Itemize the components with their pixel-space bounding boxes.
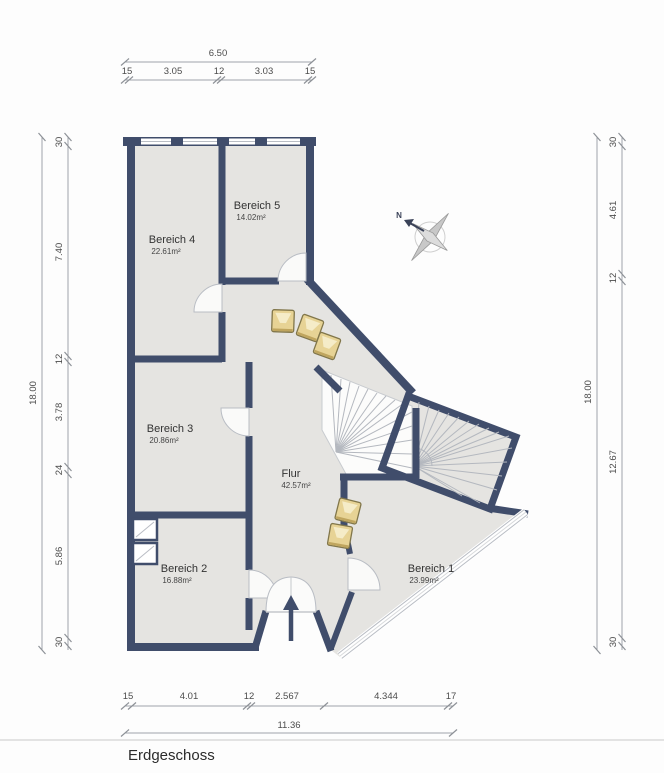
dim-right-seg1: 4.61 <box>608 201 619 220</box>
dim-top-seg3: 3.03 <box>255 66 274 77</box>
dim-bottom-seg3: 2.567 <box>275 691 299 702</box>
marker-box <box>327 523 352 548</box>
room-area-flur: 42.57m² <box>281 481 311 490</box>
dim-bottom-seg4: 4.344 <box>374 691 398 702</box>
room-area-bereich2: 16.88m² <box>162 576 192 585</box>
dimension-bottom: 15 4.01 12 2.567 4.344 17 11.36 <box>121 691 457 737</box>
dim-left-seg1: 7.40 <box>54 243 65 262</box>
room-area-bereich3: 20.86m² <box>149 436 179 445</box>
page-title: Erdgeschoss <box>128 747 215 764</box>
room-area-bereich4: 22.61m² <box>151 247 181 256</box>
title-block: Erdgeschoss <box>0 740 664 764</box>
dim-bottom-seg1: 4.01 <box>180 691 199 702</box>
dim-top-overall: 6.50 <box>209 48 228 59</box>
dim-top-seg2: 12 <box>214 66 225 77</box>
dim-left-overall: 18.00 <box>28 381 39 405</box>
floor-plan-page: N Bereich 5 14.02m² Bereich 4 22.61m² Be… <box>0 0 664 773</box>
dim-top-seg1: 3.05 <box>164 66 183 77</box>
room-label-bereich1: Bereich 1 <box>408 563 454 575</box>
marker-box <box>272 310 295 333</box>
dim-right-seg0: 30 <box>608 137 619 148</box>
dim-left-seg5: 5.86 <box>54 547 65 566</box>
room-label-bereich2: Bereich 2 <box>161 563 207 575</box>
dim-right-seg3: 12.67 <box>608 450 619 474</box>
compass-icon: N <box>394 200 466 274</box>
dim-bottom-seg2: 12 <box>244 691 255 702</box>
dim-left-seg3: 3.78 <box>54 403 65 422</box>
dimension-right: 18.00 30 4.61 12 12.67 30 <box>583 133 626 654</box>
dim-bottom-seg0: 15 <box>123 691 134 702</box>
room-area-bereich5: 14.02m² <box>236 213 266 222</box>
dimension-left: 18.00 30 7.40 12 3.78 24 5.86 30 <box>28 133 72 654</box>
dim-right-seg2: 12 <box>608 273 619 284</box>
dimension-top: 6.50 15 3.05 12 3.03 15 <box>121 48 316 84</box>
dim-bottom-overall: 11.36 <box>277 720 300 731</box>
room-label-flur: Flur <box>282 468 301 480</box>
dim-top-seg4: 15 <box>305 66 316 77</box>
marker-box <box>335 498 362 525</box>
room-label-bereich5: Bereich 5 <box>234 200 280 212</box>
dim-top-seg0: 15 <box>122 66 133 77</box>
dim-left-seg4: 24 <box>54 465 65 476</box>
room-label-bereich3: Bereich 3 <box>147 423 193 435</box>
dim-left-seg2: 12 <box>54 354 65 365</box>
dim-right-seg4: 30 <box>608 637 619 648</box>
room-area-bereich1: 23.99m² <box>409 576 439 585</box>
dim-left-seg0: 30 <box>54 137 65 148</box>
dim-right-overall: 18.00 <box>583 380 594 404</box>
dim-left-seg6: 30 <box>54 637 65 648</box>
room-label-bereich4: Bereich 4 <box>149 234 195 246</box>
dim-bottom-seg5: 17 <box>446 691 457 702</box>
compass-north-label: N <box>396 211 402 220</box>
floor-plan-drawing: N Bereich 5 14.02m² Bereich 4 22.61m² Be… <box>0 0 664 773</box>
